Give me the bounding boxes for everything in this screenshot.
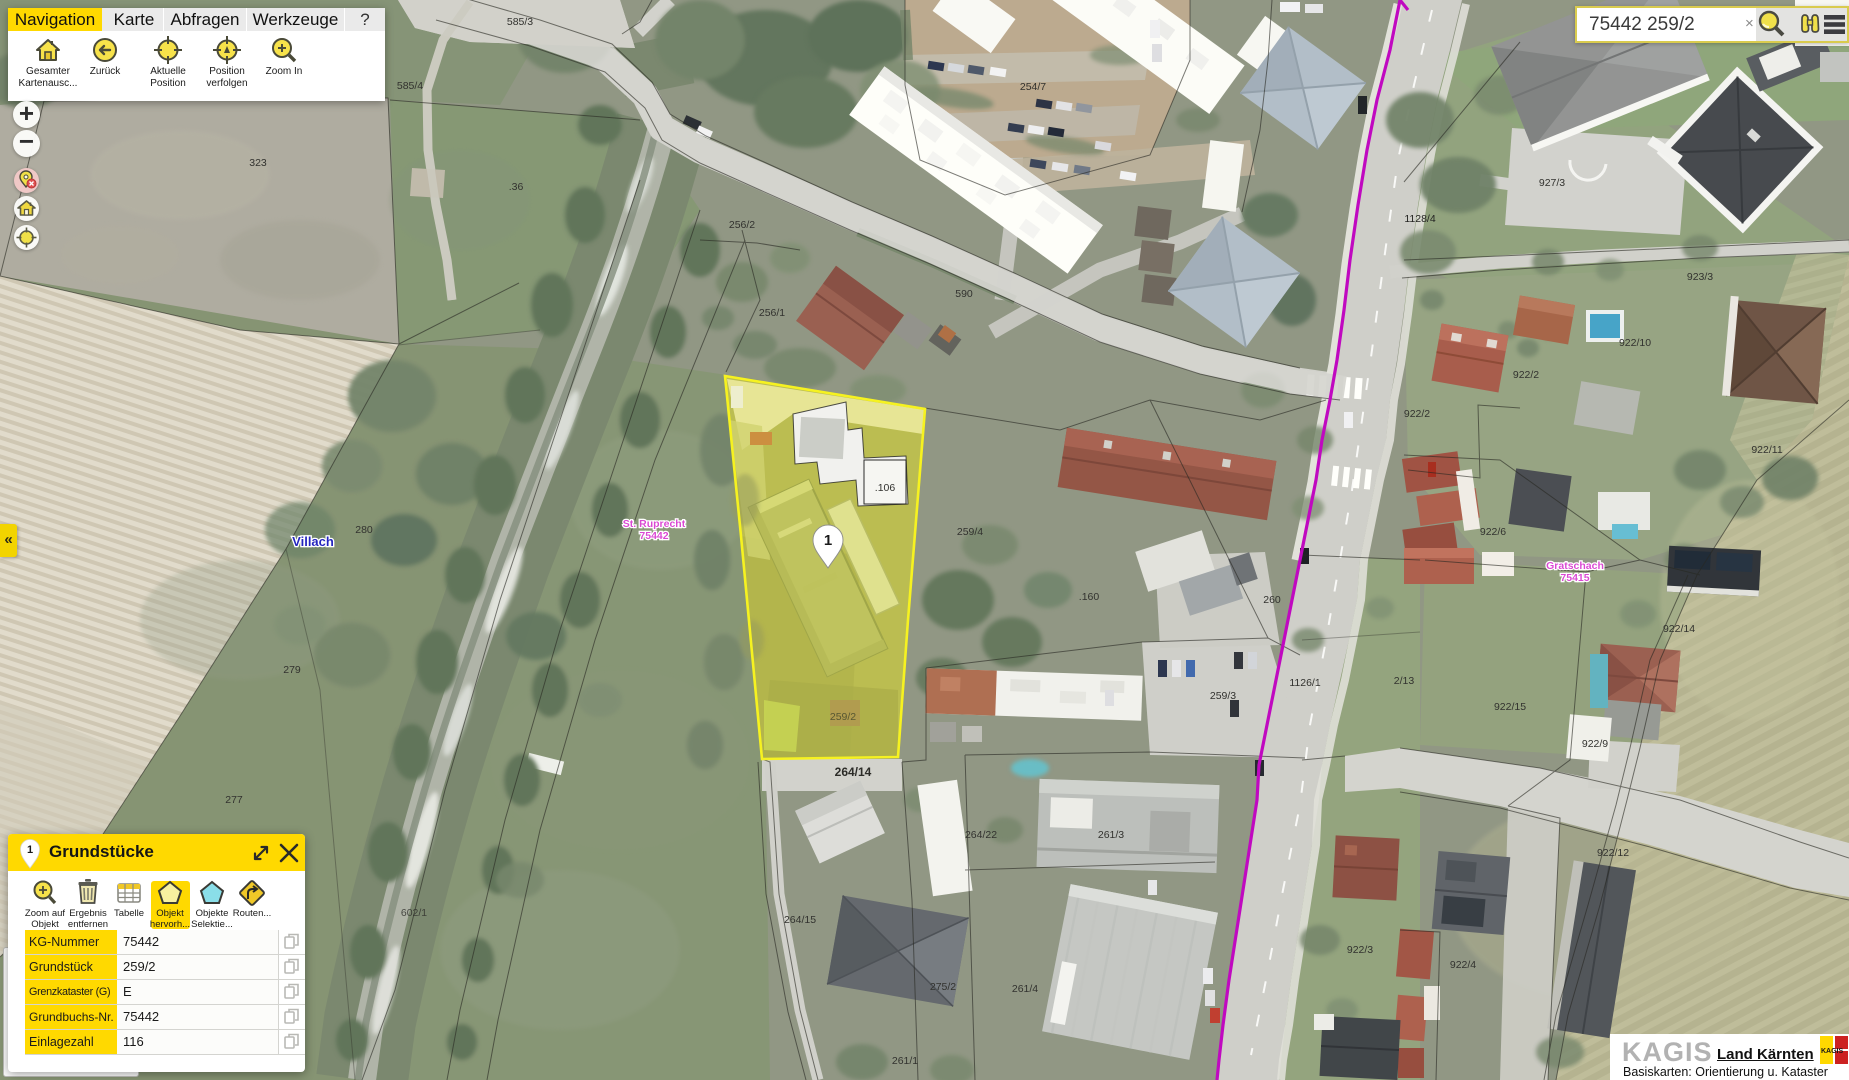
svg-text:Zoom In: Zoom In xyxy=(266,66,303,77)
svg-text:261/1: 261/1 xyxy=(892,1055,918,1067)
svg-text:922/11: 922/11 xyxy=(1751,444,1782,456)
svg-text:Position: Position xyxy=(209,66,245,77)
svg-text:280: 280 xyxy=(355,524,373,536)
svg-text:Gratschach: Gratschach xyxy=(1546,560,1604,572)
svg-text:.36: .36 xyxy=(509,181,524,193)
svg-text:Tabelle: Tabelle xyxy=(114,908,144,919)
svg-text:.106: .106 xyxy=(875,482,896,494)
svg-text:922/15: 922/15 xyxy=(1494,701,1526,713)
svg-text:922/9: 922/9 xyxy=(1582,738,1608,750)
svg-text:Selektie...: Selektie... xyxy=(191,919,233,930)
svg-text:261/4: 261/4 xyxy=(1012,983,1038,995)
svg-text:Villach: Villach xyxy=(292,534,334,549)
svg-text:1: 1 xyxy=(824,532,832,549)
svg-text:75415: 75415 xyxy=(1560,572,1589,584)
svg-text:585/4: 585/4 xyxy=(397,80,423,92)
svg-text:1126/1: 1126/1 xyxy=(1289,677,1320,689)
svg-text:.160: .160 xyxy=(1079,591,1100,603)
svg-text:275/2: 275/2 xyxy=(930,981,956,993)
svg-text:Gesamter: Gesamter xyxy=(26,66,71,77)
svg-text:922/2: 922/2 xyxy=(1513,369,1539,381)
svg-text:922/12: 922/12 xyxy=(1597,847,1629,859)
svg-text:254/7: 254/7 xyxy=(1020,81,1046,93)
svg-text:Position: Position xyxy=(150,78,186,89)
svg-text:259/3: 259/3 xyxy=(1210,690,1236,702)
svg-text:279: 279 xyxy=(283,664,301,676)
svg-text:Kartenausc...: Kartenausc... xyxy=(19,78,78,89)
svg-text:75442: 75442 xyxy=(639,530,668,542)
svg-text:Ergebnis: Ergebnis xyxy=(69,908,107,919)
svg-text:922/3: 922/3 xyxy=(1347,944,1373,956)
svg-text:256/2: 256/2 xyxy=(729,219,755,231)
svg-text:259/2: 259/2 xyxy=(830,711,856,723)
svg-text:260: 260 xyxy=(1263,594,1281,606)
svg-text:261/3: 261/3 xyxy=(1098,829,1124,841)
svg-text:922/2: 922/2 xyxy=(1404,408,1430,420)
svg-text:277: 277 xyxy=(225,794,243,806)
svg-text:922/6: 922/6 xyxy=(1480,526,1506,538)
svg-text:923/3: 923/3 xyxy=(1687,271,1713,283)
svg-text:hervorh...: hervorh... xyxy=(150,919,190,930)
svg-text:256/1: 256/1 xyxy=(759,307,785,319)
svg-text:323: 323 xyxy=(249,157,267,169)
svg-text:922/10: 922/10 xyxy=(1619,337,1651,349)
svg-text:Routen...: Routen... xyxy=(233,908,272,919)
svg-text:entfernen: entfernen xyxy=(68,919,108,930)
svg-text:Objekt: Objekt xyxy=(156,908,184,919)
svg-text:585/3: 585/3 xyxy=(507,16,533,28)
svg-text:Objekt: Objekt xyxy=(31,919,59,930)
svg-text:Zurück: Zurück xyxy=(90,66,122,77)
svg-text:1128/4: 1128/4 xyxy=(1404,213,1435,225)
svg-text:St. Ruprecht: St. Ruprecht xyxy=(623,518,686,530)
svg-text:922/14: 922/14 xyxy=(1663,623,1695,635)
svg-text:Zoom auf: Zoom auf xyxy=(25,908,65,919)
svg-text:Objekte: Objekte xyxy=(196,908,229,919)
svg-text:264/14: 264/14 xyxy=(835,765,872,779)
svg-text:264/15: 264/15 xyxy=(784,914,816,926)
svg-text:Aktuelle: Aktuelle xyxy=(150,66,186,77)
svg-text:922/4: 922/4 xyxy=(1450,959,1476,971)
svg-text:590: 590 xyxy=(955,288,973,300)
svg-text:602/1: 602/1 xyxy=(401,907,427,919)
svg-text:264/22: 264/22 xyxy=(965,829,997,841)
svg-text:927/3: 927/3 xyxy=(1539,177,1565,189)
svg-text:verfolgen: verfolgen xyxy=(206,78,247,89)
svg-text:1: 1 xyxy=(27,844,33,856)
svg-text:2/13: 2/13 xyxy=(1394,675,1415,687)
svg-text:KAGIS: KAGIS xyxy=(1821,1048,1844,1055)
svg-text:259/4: 259/4 xyxy=(957,526,983,538)
